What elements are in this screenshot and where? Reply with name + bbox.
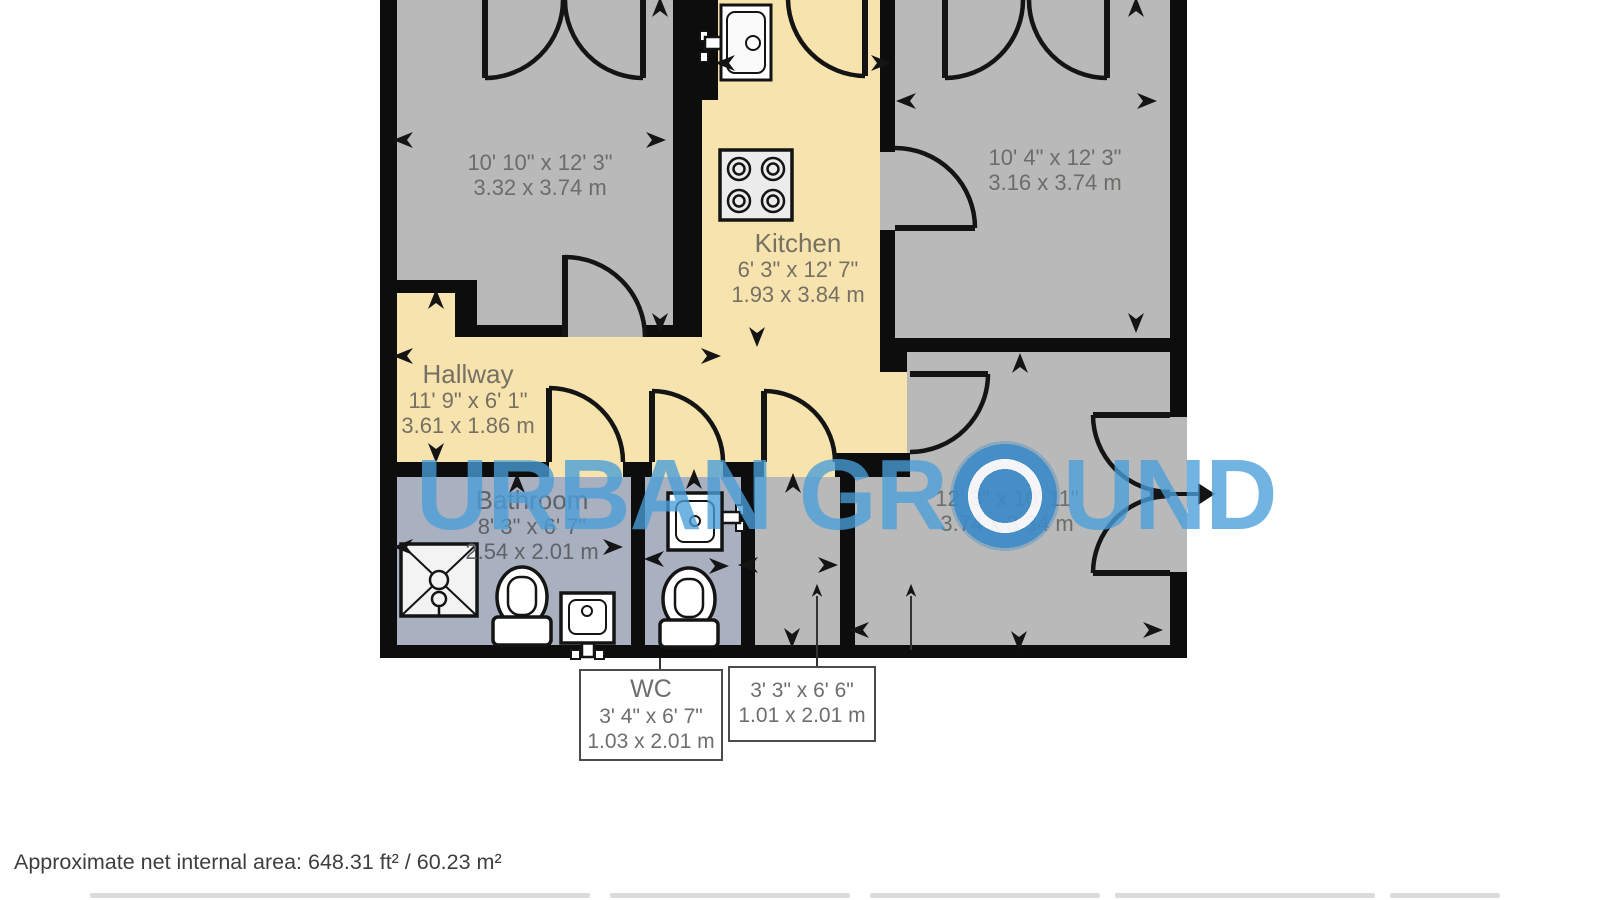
wc-dims-metric: 1.03 x 2.01 m [587,730,714,755]
bedroom2-dims-imperial: 10' 4" x 12' 3" [940,146,1170,171]
wc-toilet-symbol [660,568,718,647]
hallway-dims-imperial: 11' 9" x 6' 1" [374,389,562,414]
kitchen-label: Kitchen 6' 3" x 12' 7" 1.93 x 3.84 m [712,229,884,307]
area-note: Approximate net internal area: 648.31 ft… [14,850,502,875]
cutoff-text-strip [1390,893,1500,898]
store-dims-metric: 1.01 x 2.01 m [738,704,865,729]
watermark-text-left: URBAN GR [416,438,947,553]
wc-name: WC [630,675,672,705]
cutoff-text-strip [870,893,1100,898]
bedroom2-label: 10' 4" x 12' 3" 3.16 x 3.74 m [940,146,1170,195]
store-dims-imperial: 3' 3" x 6' 6" [750,679,853,704]
bedroom1-dims-imperial: 10' 10" x 12' 3" [425,151,655,176]
stove-symbol [720,150,792,220]
hallway-label: Hallway 11' 9" x 6' 1" 3.61 x 1.86 m [374,360,562,438]
cutoff-text-strip [1115,893,1375,898]
bedroom1-dims-metric: 3.32 x 3.74 m [425,176,655,201]
watermark-splat-icon [950,441,1060,551]
watermark-text-right: UND [1063,438,1277,553]
bedroom2-dims-metric: 3.16 x 3.74 m [940,171,1170,196]
cutoff-text-strip [610,893,850,898]
bedroom1-label: 10' 10" x 12' 3" 3.32 x 3.74 m [425,151,655,200]
watermark: URBAN GR UND [416,438,1277,553]
cutoff-text-strip [90,893,590,898]
wc-dims-imperial: 3' 4" x 6' 7" [599,705,702,730]
kitchen-dims-metric: 1.93 x 3.84 m [712,283,884,308]
kitchen-name: Kitchen [712,229,884,258]
wc-callout: WC 3' 4" x 6' 7" 1.03 x 2.01 m [579,669,723,761]
store-callout: 3' 3" x 6' 6" 1.01 x 2.01 m [728,666,876,742]
floorplan-page: 10' 10" x 12' 3" 3.32 x 3.74 m Kitchen 6… [0,0,1600,900]
kitchen-dims-imperial: 6' 3" x 12' 7" [712,258,884,283]
hallway-name: Hallway [374,360,562,389]
bathroom-toilet-symbol [493,567,551,645]
hallway-dims-metric: 3.61 x 1.86 m [374,414,562,439]
